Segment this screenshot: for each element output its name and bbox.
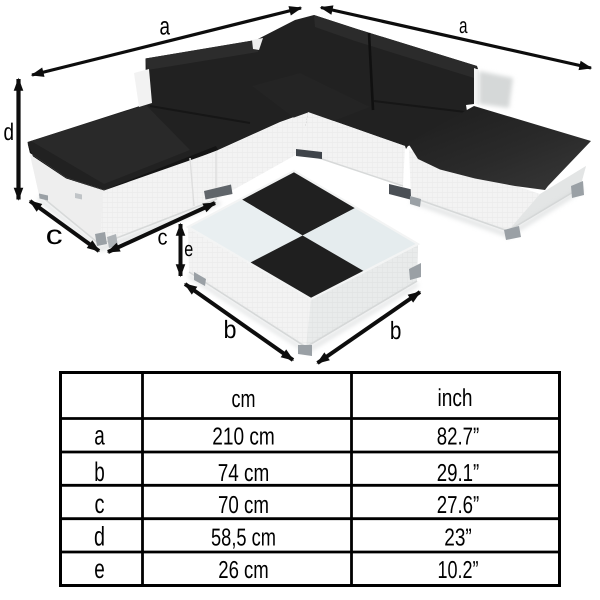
svg-text:70 cm: 70 cm [218,492,269,519]
svg-text:c: c [95,489,105,519]
svg-text:58,5 cm: 58,5 cm [211,525,276,552]
svg-text:26 cm: 26 cm [218,557,269,584]
svg-text:cm: cm [232,386,256,413]
svg-text:c: c [46,220,63,250]
svg-text:74 cm: 74 cm [218,460,270,487]
svg-text:82.7”: 82.7” [437,424,480,451]
svg-text:inch: inch [438,385,473,412]
svg-text:a: a [459,13,468,38]
svg-text:c: c [158,225,168,250]
svg-text:e: e [184,238,193,261]
svg-text:23”: 23” [444,525,472,552]
svg-text:210 cm: 210 cm [212,424,275,451]
svg-text:29.1”: 29.1” [437,460,480,487]
svg-text:10.2”: 10.2” [438,557,479,584]
svg-text:d: d [94,522,105,552]
svg-text:b: b [390,317,402,345]
svg-text:27.6”: 27.6” [437,492,480,519]
svg-text:e: e [94,554,105,584]
svg-text:d: d [4,119,15,146]
svg-text:b: b [94,457,105,487]
svg-text:a: a [160,13,171,41]
svg-text:b: b [224,316,237,344]
svg-text:a: a [94,421,105,451]
